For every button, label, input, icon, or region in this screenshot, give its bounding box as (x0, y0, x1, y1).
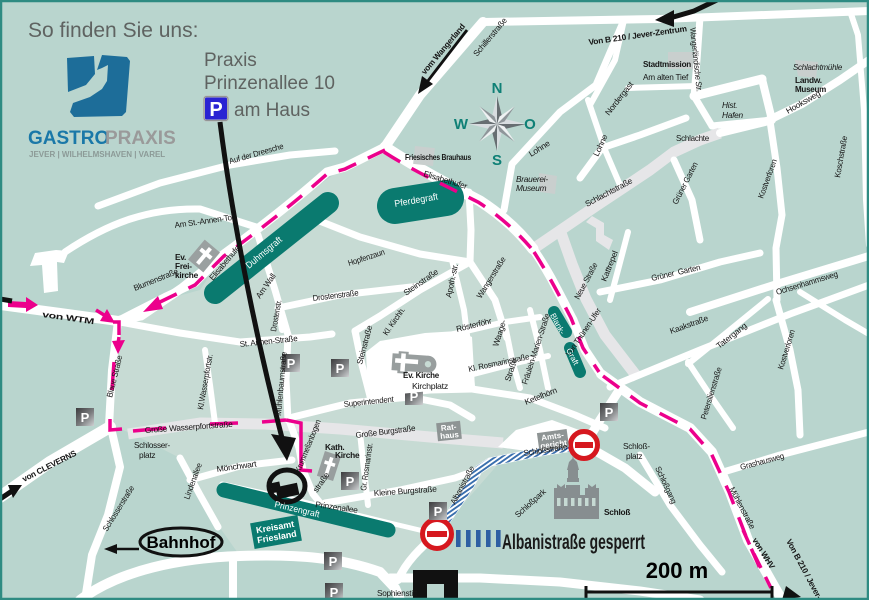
svg-text:Praxis: Praxis (204, 50, 257, 71)
svg-text:Schlachte: Schlachte (676, 133, 710, 143)
svg-text:am Haus: am Haus (234, 100, 310, 121)
svg-text:Hafen: Hafen (722, 110, 744, 120)
svg-text:W: W (454, 116, 469, 133)
svg-text:P: P (329, 554, 338, 569)
svg-text:O: O (524, 116, 536, 133)
svg-text:S: S (492, 152, 502, 169)
svg-text:Bahnhof: Bahnhof (147, 533, 216, 552)
svg-text:Hist.: Hist. (722, 100, 737, 110)
svg-text:Kirche: Kirche (335, 450, 360, 460)
svg-text:So finden Sie uns:: So finden Sie uns: (28, 19, 198, 42)
svg-text:Am alten Tief: Am alten Tief (643, 72, 689, 82)
svg-text:Prinzenallee 10: Prinzenallee 10 (204, 73, 335, 94)
svg-text:JEVER | WILHELMSHAVEN | VAREL: JEVER | WILHELMSHAVEN | VAREL (29, 150, 165, 159)
svg-text:GASTRO: GASTRO (28, 128, 109, 149)
svg-text:Friesisches Brauhaus: Friesisches Brauhaus (405, 152, 472, 162)
svg-text:Albanistraße gesperrt: Albanistraße gesperrt (502, 531, 645, 554)
svg-text:P: P (346, 474, 355, 489)
svg-text:P: P (209, 99, 222, 121)
svg-text:kirche: kirche (175, 270, 199, 280)
svg-text:Schlachtmühle: Schlachtmühle (793, 62, 843, 72)
svg-text:P: P (336, 361, 345, 376)
svg-text:P: P (81, 410, 90, 425)
svg-text:P: P (434, 504, 443, 519)
svg-text:Ev. Kirche: Ev. Kirche (403, 370, 440, 380)
svg-text:Sophienstift: Sophienstift (377, 588, 418, 598)
svg-text:Stadtmission: Stadtmission (643, 59, 691, 69)
svg-text:platz: platz (626, 451, 642, 461)
svg-text:Museum: Museum (516, 183, 547, 193)
svg-text:platz: platz (139, 450, 155, 460)
svg-text:Schlosser-: Schlosser- (134, 440, 170, 450)
svg-text:Schloß: Schloß (604, 507, 630, 517)
svg-text:P: P (605, 405, 614, 420)
svg-text:PRAXIS: PRAXIS (105, 128, 176, 149)
svg-text:200 m: 200 m (646, 558, 708, 583)
svg-text:Schloß-: Schloß- (623, 441, 650, 451)
svg-text:N: N (492, 80, 503, 97)
svg-text:Kirchplatz: Kirchplatz (412, 381, 448, 391)
